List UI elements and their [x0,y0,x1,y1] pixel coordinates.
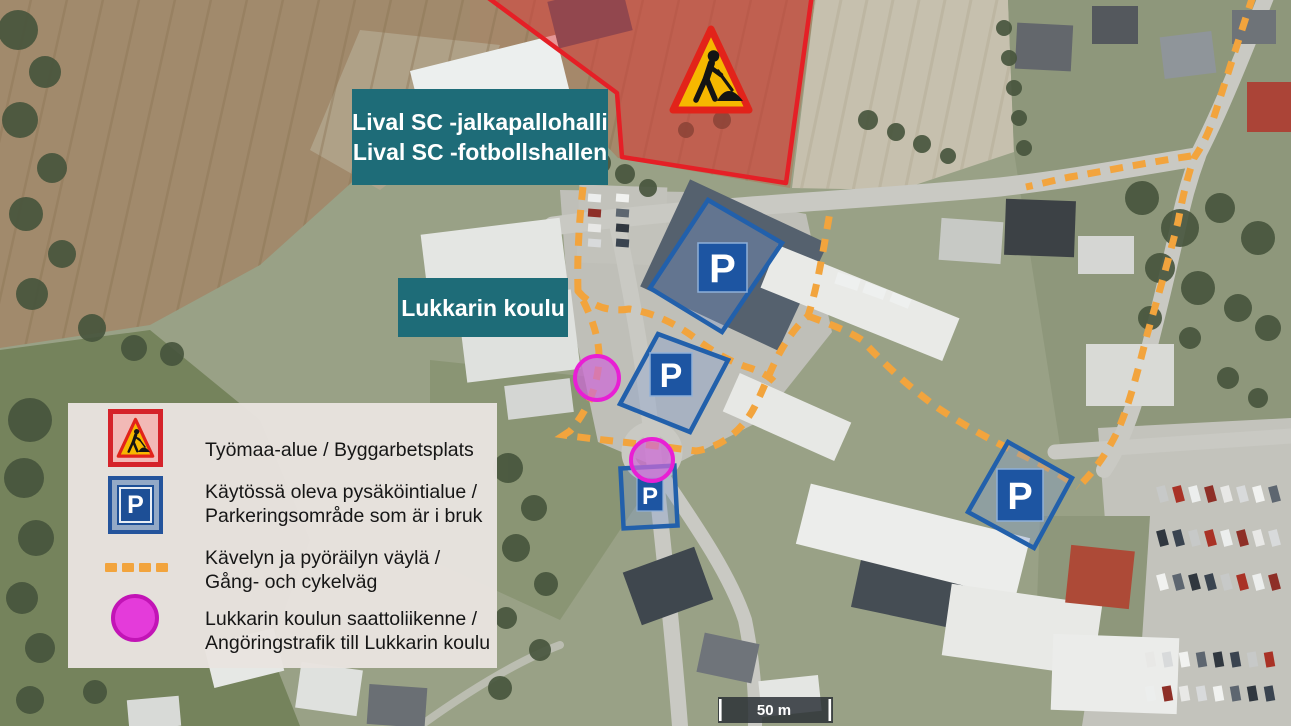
legend-text: Käytössä oleva pysäköintialue / [205,481,482,505]
hall-label-line2: Lival SC -fotbollshallen [353,137,607,167]
parking-p-symbol: P [1007,476,1032,518]
dropoff-circle-south [631,439,673,481]
dropoff-circle-icon [111,594,159,642]
dropoff-circle-west [575,356,619,400]
scale-bar: 50 m [718,697,833,723]
legend-text: Lukkarin koulun saattoliikenne / [205,608,490,632]
parking-p-symbol: P [709,247,736,291]
hall-label: Lival SC -jalkapallohalli Lival SC -fotb… [352,89,608,185]
legend-text: Työmaa-alue / Byggarbetsplats [205,439,474,463]
traffic-guidance-map: P P P P 50 m Lival SC -jalkapallohalli L… [0,0,1291,726]
parking-p-symbol: P [660,357,683,395]
parking-sign-icon: P [108,476,163,534]
legend-text: Angöringstrafik till Lukkarin koulu [205,632,490,656]
scale-bar-label: 50 m [757,702,791,719]
legend-p-symbol: P [119,487,152,523]
school-label-text: Lukkarin koulu [401,293,565,323]
school-label: Lukkarin koulu [398,278,568,337]
legend: Työmaa-alue / Byggarbetsplats P Käytössä… [68,403,497,668]
parking-p-symbol: P [642,483,658,510]
legend-text: Kävelyn ja pyöräilyn väylä / [205,547,440,571]
legend-text: Gång- och cykelväg [205,571,440,595]
path-dash-icon [105,559,173,577]
construction-sign-icon [108,409,163,472]
legend-text: Parkeringsområde som är i bruk [205,505,482,529]
hall-label-line1: Lival SC -jalkapallohalli [352,107,608,137]
